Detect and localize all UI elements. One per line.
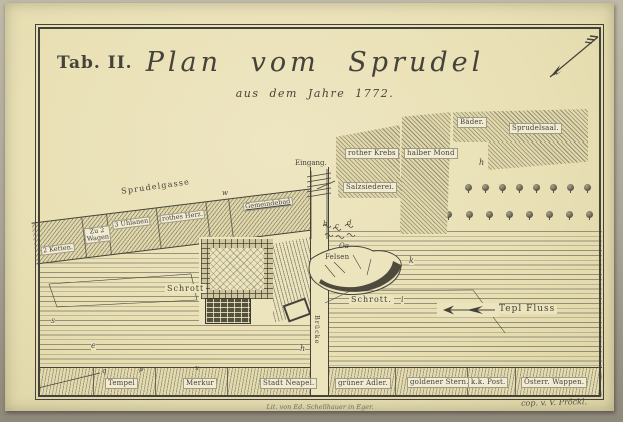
label-gruener-adler: grüner Adler. (335, 378, 391, 389)
marker-letter: h (479, 159, 484, 167)
label-stadt-neapel: Stadt Neapel. (260, 378, 317, 389)
marker-letter: k (409, 257, 414, 265)
label-salzsiederei: Salzsiederei. (343, 182, 397, 193)
spring-marker: Oa (339, 242, 349, 250)
label-baeder: Bäder. (457, 117, 487, 128)
marker-letter: s (51, 317, 55, 325)
label-tempel: Tempel (105, 378, 138, 389)
flow-arrow-icon (437, 303, 499, 317)
label-kk-post: k.k. Post. (468, 377, 508, 388)
scanned-page: Tab. II. Plan vom Sprudel aus dem Jahre … (0, 0, 623, 422)
bridge-label: Brücke (313, 315, 321, 345)
marker-letter: b (323, 220, 327, 228)
entrance-label: Eingang. (295, 159, 327, 167)
label-halber-mond: halber Mond (404, 148, 458, 159)
marker-letter: w (222, 189, 228, 197)
debris-label-left: Schrott (165, 284, 206, 293)
marker-letter: h (300, 345, 305, 353)
marker-letter: d (347, 219, 351, 227)
label-merkur: Merkur (183, 378, 217, 389)
marker-letter: e (91, 342, 96, 350)
label-sprudelsaal: Sprudelsaal. (509, 123, 562, 134)
rock-label: Felsen (323, 253, 351, 262)
copyist-credit: cop. v. V. Pröckl. (521, 397, 587, 408)
marker-letter: i (401, 296, 404, 304)
marker-letter: p (139, 365, 143, 373)
paper-sheet: Tab. II. Plan vom Sprudel aus dem Jahre … (5, 3, 614, 411)
marker-letter: c (335, 222, 339, 230)
label-goldener-stern: goldener Stern. (407, 377, 472, 388)
river-label: Tepl Fluss (497, 305, 557, 314)
label-rother-krebs: rother Krebs (345, 148, 399, 159)
marker-letter: q (102, 367, 106, 375)
marker-letter: x (195, 364, 199, 372)
debris-label-right: Schrott. (349, 295, 394, 304)
lithographer-credit: Lit. von Ed. Schellhauer in Eger. (255, 403, 385, 411)
label-oesterr-wappen: Österr. Wappen. (521, 377, 587, 388)
